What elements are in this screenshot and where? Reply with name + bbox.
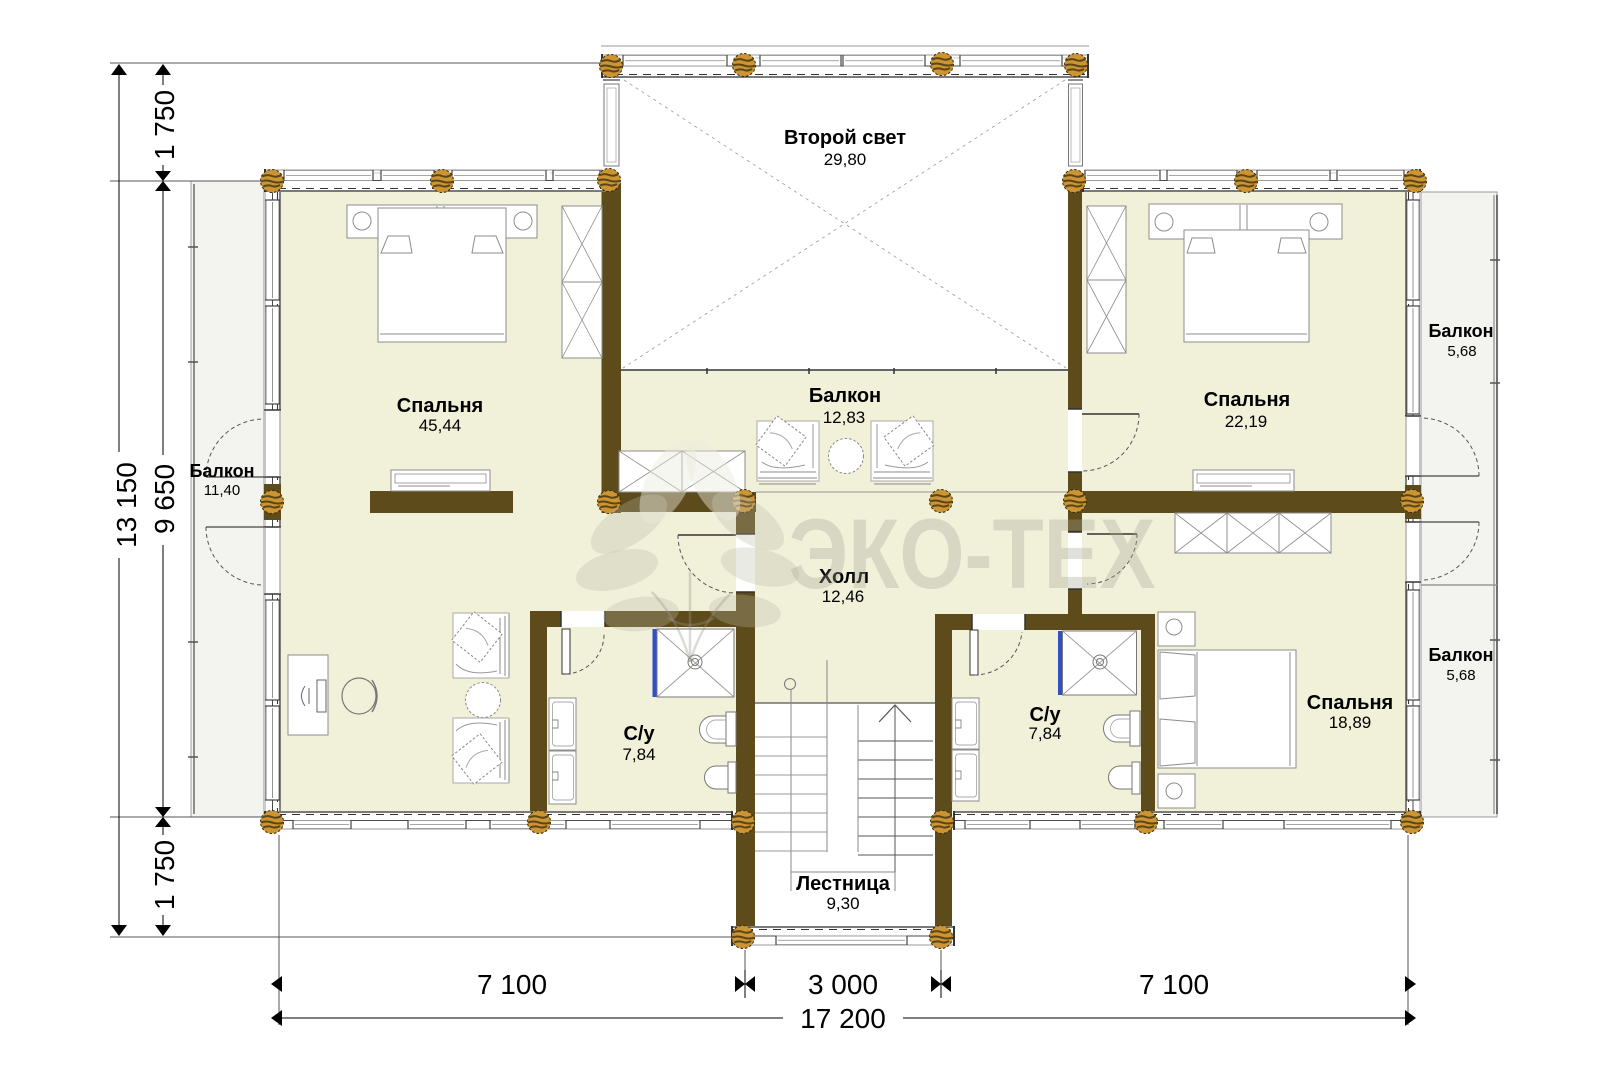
svg-text:29,80: 29,80	[824, 150, 867, 169]
svg-text:С/у: С/у	[623, 723, 655, 745]
svg-text:13 150: 13 150	[111, 462, 142, 548]
svg-text:Балкон: Балкон	[809, 385, 881, 407]
svg-text:ЭКО-ТЕХ: ЭКО-ТЕХ	[789, 498, 1156, 609]
svg-text:45,44: 45,44	[419, 416, 462, 435]
svg-text:7,84: 7,84	[1028, 724, 1061, 743]
svg-text:5,68: 5,68	[1446, 667, 1475, 684]
svg-text:9 650: 9 650	[149, 464, 180, 534]
svg-text:12,83: 12,83	[823, 408, 866, 427]
svg-text:7,84: 7,84	[622, 745, 655, 764]
svg-text:Спальня: Спальня	[1307, 692, 1393, 714]
svg-text:11,40: 11,40	[204, 482, 240, 499]
svg-text:1 750: 1 750	[149, 840, 180, 910]
svg-text:7 100: 7 100	[477, 969, 547, 1000]
svg-text:Лестница: Лестница	[796, 873, 891, 895]
svg-text:3 000: 3 000	[808, 969, 878, 1000]
svg-text:5,68: 5,68	[1447, 343, 1476, 360]
svg-text:С/у: С/у	[1029, 704, 1061, 726]
svg-text:Спальня: Спальня	[397, 395, 483, 417]
svg-text:Балкон: Балкон	[1428, 321, 1493, 341]
svg-text:1 750: 1 750	[149, 90, 180, 160]
svg-text:22,19: 22,19	[1225, 412, 1268, 431]
svg-text:9,30: 9,30	[826, 894, 859, 913]
svg-text:Балкон: Балкон	[1428, 645, 1493, 665]
svg-text:7 100: 7 100	[1139, 969, 1209, 1000]
svg-text:Балкон: Балкон	[189, 461, 254, 481]
svg-text:18,89: 18,89	[1329, 713, 1372, 732]
svg-text:Спальня: Спальня	[1204, 389, 1290, 411]
svg-text:Второй свет: Второй свет	[784, 127, 906, 149]
svg-text:17 200: 17 200	[800, 1003, 886, 1034]
